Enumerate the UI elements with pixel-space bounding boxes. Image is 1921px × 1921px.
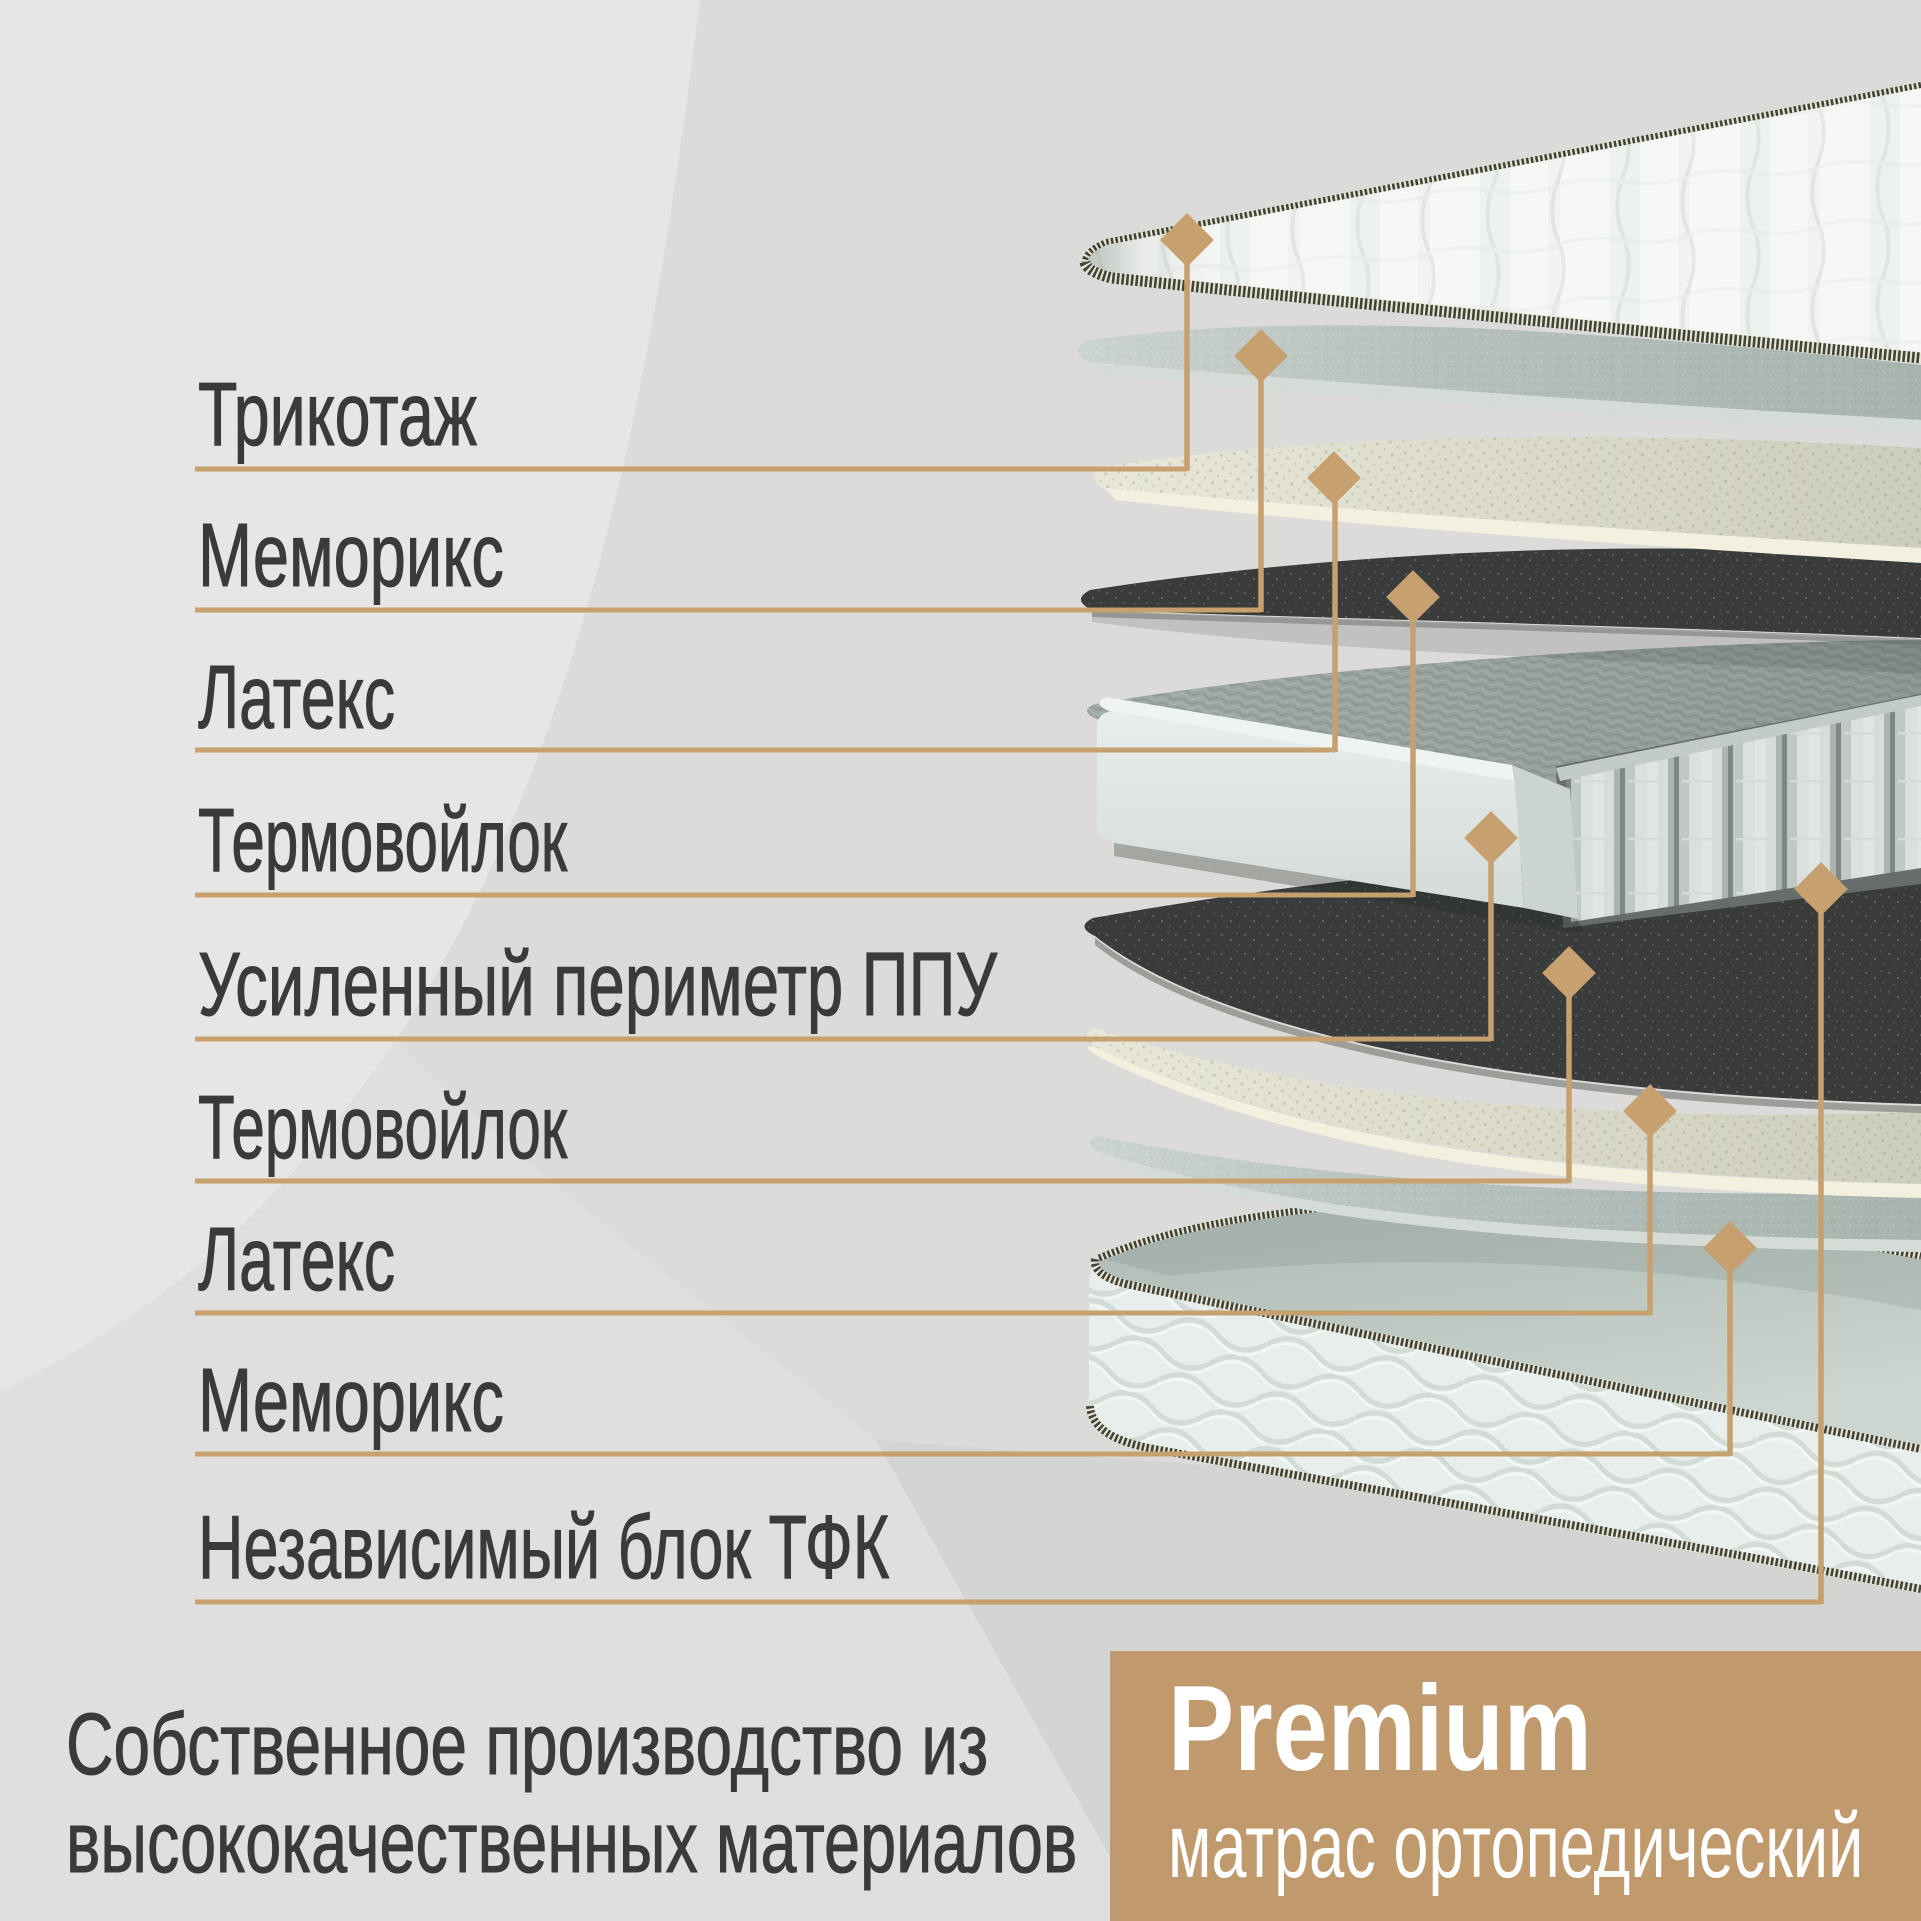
svg-text:Трикотаж: Трикотаж (198, 363, 478, 464)
svg-text:матрас ортопедический: матрас ортопедический (1168, 1795, 1863, 1897)
svg-text:Латекс: Латекс (198, 648, 395, 748)
svg-text:Меморикс: Меморикс (198, 505, 504, 606)
svg-text:высококачественных материалов: высококачественных материалов (66, 1795, 1077, 1891)
svg-text:Термовойлок: Термовойлок (198, 1078, 568, 1178)
svg-text:Независимый блок ТФК: Независимый блок ТФК (198, 1498, 889, 1598)
svg-text:Собственное производство из: Собственное производство из (66, 1696, 988, 1793)
svg-text:Термовойлок: Термовойлок (198, 791, 568, 891)
svg-text:Premium: Premium (1168, 1659, 1592, 1796)
svg-text:Латекс: Латекс (198, 1210, 395, 1310)
svg-text:Усиленный периметр ППУ: Усиленный периметр ППУ (198, 934, 998, 1035)
svg-text:Меморикс: Меморикс (198, 1350, 504, 1451)
